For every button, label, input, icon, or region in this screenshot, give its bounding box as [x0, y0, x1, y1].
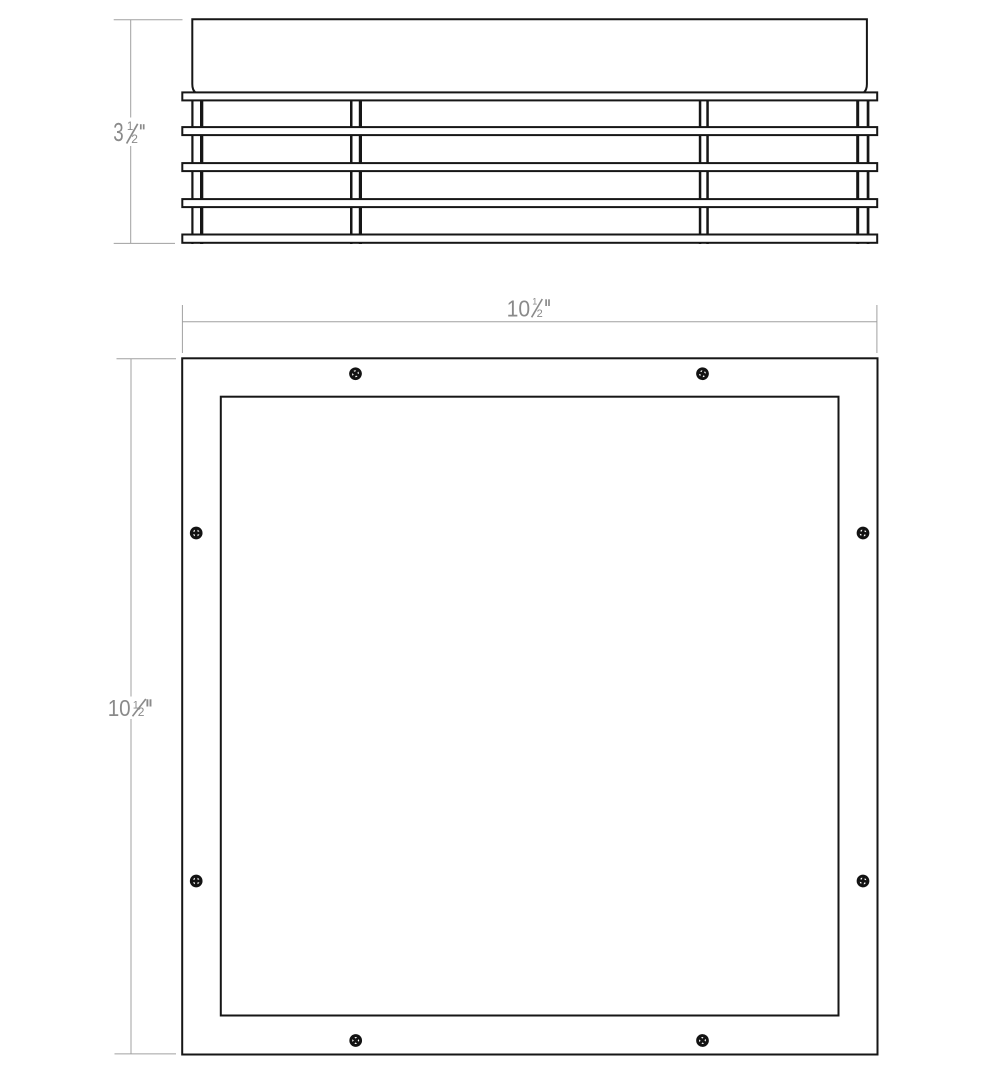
svg-text:2: 2	[138, 705, 145, 719]
svg-text:2: 2	[537, 308, 543, 320]
svg-text:10: 10	[507, 295, 530, 321]
svg-text:1: 1	[532, 296, 537, 306]
svg-text:3: 3	[113, 117, 123, 147]
svg-text:10: 10	[108, 695, 131, 721]
svg-text:2: 2	[131, 132, 138, 146]
